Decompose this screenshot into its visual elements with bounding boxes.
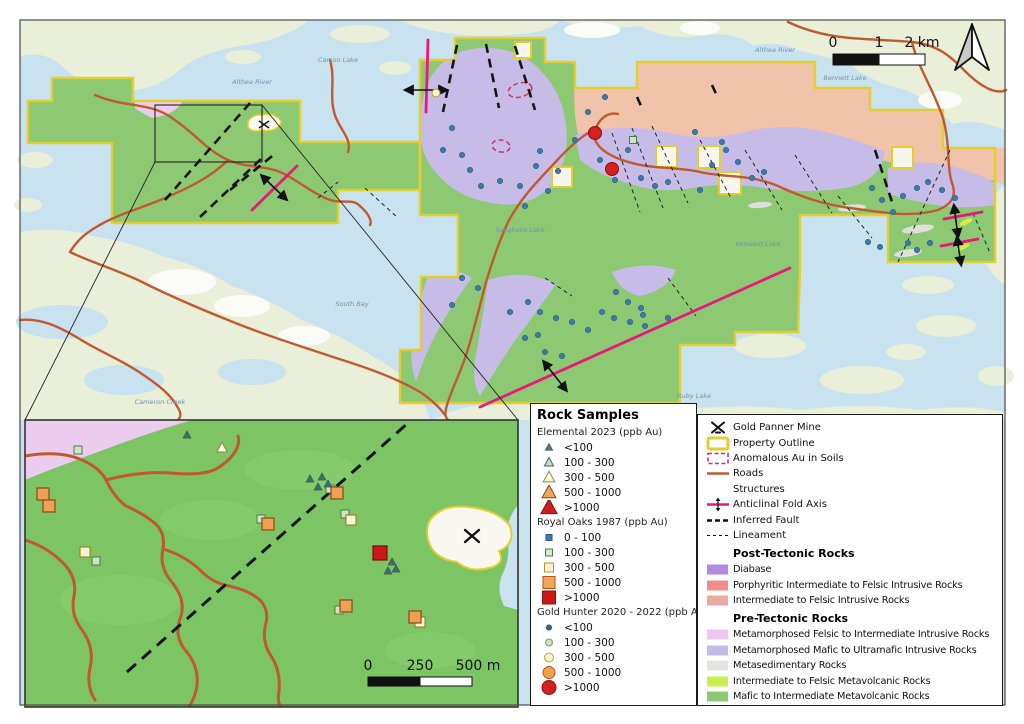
sample-dot (585, 327, 591, 333)
legend-item: 300 - 500 (537, 470, 690, 485)
sample-dot (497, 178, 503, 184)
legend-item-label: Metasedimentary Rocks (733, 660, 846, 671)
legend-header-post-tectonic: Post-Tectonic Rocks (706, 546, 994, 562)
sample-dot (517, 183, 523, 189)
legend-item-label: 300 - 500 (564, 472, 615, 484)
sample-dot (638, 305, 644, 311)
square-symbol (545, 563, 554, 572)
sample-dot (537, 309, 543, 315)
sample-dot (697, 187, 703, 193)
sample-dot (642, 323, 648, 329)
legend-item-label: 500 - 1000 (564, 667, 621, 679)
rock-unit-swatch (707, 565, 728, 575)
sample-dot (585, 109, 591, 115)
legend-item: Anticlinal Fold Axis (706, 497, 994, 512)
legend-item-label: <100 (564, 622, 593, 634)
legend-item: Intermediate to Felsic Metavolcanic Rock… (706, 673, 994, 688)
legend-item-label: Intermediate to Felsic Intrusive Rocks (733, 595, 909, 606)
sample-dot (735, 159, 741, 165)
circle-symbol (546, 639, 553, 646)
sample-dot (507, 309, 513, 315)
sample-dot (890, 209, 896, 215)
legend-item-label: 0 - 100 (564, 532, 601, 544)
sample-dot (478, 183, 484, 189)
legend-item-label: 300 - 500 (564, 652, 615, 664)
legend-item-label: Roads (733, 468, 763, 479)
legend-item-label: Structures (733, 484, 785, 495)
sample-dot (522, 203, 528, 209)
inset-scale-250: 250 (407, 658, 434, 674)
sample-dot (652, 183, 658, 189)
triangle-symbol (542, 485, 556, 498)
lake-label: South Bay (335, 300, 368, 308)
legend-symbol (706, 451, 730, 466)
legend-item: 500 - 1000 (537, 575, 690, 590)
scale-1: 1 (875, 35, 884, 51)
legend-item: Diabase (706, 562, 994, 577)
legend-symbol (537, 620, 561, 635)
sample-dot (467, 167, 473, 173)
sample-circle-high (606, 163, 619, 176)
legend-section-label: Elemental 2023 (ppb Au) (537, 425, 690, 440)
sample-dot (719, 139, 725, 145)
legend-item-label: Porphyritic Intermediate to Felsic Intru… (733, 580, 963, 591)
rock-unit-swatch (707, 692, 728, 702)
sample-dot (761, 169, 767, 175)
legend-item-label: >1000 (564, 592, 600, 604)
inset-scale-500m: 500 m (456, 658, 501, 674)
legend-symbol (706, 689, 730, 704)
legend-item: 500 - 1000 (537, 485, 690, 500)
legend-item: Metamorphosed Mafic to Ultramafic Intrus… (706, 643, 994, 658)
sample-dot (665, 315, 671, 321)
legend-section-label: Royal Oaks 1987 (ppb Au) (537, 515, 690, 530)
lake-label: Althea River (231, 78, 273, 86)
sample-dot (692, 129, 698, 135)
legend-item-label: Lineament (733, 530, 786, 541)
sample-dot (709, 162, 715, 168)
legend-item: Gold Panner Mine (706, 420, 994, 435)
anomalous-soils-icon (708, 453, 728, 463)
legend-item-label: 300 - 500 (564, 562, 615, 574)
sample-dot (449, 125, 455, 131)
sample-square (37, 488, 49, 500)
legend-item-label: 500 - 1000 (564, 577, 621, 589)
legend-symbol (537, 545, 561, 560)
rock-unit-swatch (707, 596, 728, 606)
sample-square (630, 137, 637, 144)
triangle-symbol (541, 500, 557, 514)
sample-dot (613, 289, 619, 295)
legend-item-label: Metamorphosed Mafic to Ultramafic Intrus… (733, 645, 977, 656)
legend-item: Property Outline (706, 435, 994, 450)
legend-item-label: Property Outline (733, 438, 815, 449)
legend-item-label: Inferred Fault (733, 515, 799, 526)
legend-item-label: Anticlinal Fold Axis (733, 499, 827, 510)
legend-item-label: <100 (564, 442, 593, 454)
sample-dot (553, 315, 559, 321)
legend-item: >1000 (537, 590, 690, 605)
legend-item-label: Metamorphosed Felsic to Intermediate Int… (733, 629, 989, 640)
sample-dot (597, 157, 603, 163)
square-symbol (546, 535, 552, 541)
legend-symbol (537, 560, 561, 575)
legend-item-label: Intermediate to Felsic Metavolcanic Rock… (733, 676, 930, 687)
sample-dot (545, 188, 551, 194)
legend-item: Metasedimentary Rocks (706, 658, 994, 673)
circle-symbol (542, 681, 556, 695)
sample-square-high (373, 546, 387, 560)
legend-symbol (537, 455, 561, 470)
legend-item-label: 500 - 1000 (564, 487, 621, 499)
sample-dot (572, 137, 578, 143)
legend-symbol (706, 658, 730, 673)
legend-item: Intermediate to Felsic Intrusive Rocks (706, 593, 994, 608)
legend-item: 0 - 100 (537, 530, 690, 545)
sample-dot (914, 247, 920, 253)
sample-dot (625, 299, 631, 305)
sample-dot (612, 177, 618, 183)
legend-symbol (537, 500, 561, 515)
legend-item-label: 100 - 300 (564, 457, 615, 469)
legend-item: Roads (706, 466, 994, 481)
sample-dot (877, 244, 883, 250)
legend-symbol (706, 497, 730, 512)
sample-dot (879, 197, 885, 203)
sample-square (340, 600, 352, 612)
legend-symbol (537, 635, 561, 650)
sample-dot (640, 312, 646, 318)
legend-rock-samples: Rock Samples Elemental 2023 (ppb Au)<100… (530, 403, 697, 706)
legend-symbol (706, 528, 730, 543)
legend-symbol (706, 466, 730, 481)
sample-dot (602, 94, 608, 100)
legend-item: 100 - 300 (537, 455, 690, 470)
sample-dot (611, 315, 617, 321)
sample-dot (459, 152, 465, 158)
sample-square (43, 500, 55, 512)
legend-item-label: 100 - 300 (564, 637, 615, 649)
sample-dot (542, 349, 548, 355)
sample-dot (475, 285, 481, 291)
legend-symbol (706, 643, 730, 658)
legend-item: Metamorphosed Felsic to Intermediate Int… (706, 627, 994, 642)
legend-item: Porphyritic Intermediate to Felsic Intru… (706, 578, 994, 593)
square-symbol (546, 549, 553, 556)
sample-dot (625, 147, 631, 153)
lake-label: Bennett Lake (823, 74, 866, 82)
salmon-outside (995, 148, 1005, 185)
sample-dot (900, 193, 906, 199)
triangle-symbol (546, 444, 553, 450)
triangle-symbol (544, 458, 553, 466)
legend-item: Mafic to Intermediate Metavolcanic Rocks (706, 689, 994, 704)
sample-dot (925, 179, 931, 185)
legend-item-label: >1000 (564, 682, 600, 694)
legend-item: 100 - 300 (537, 635, 690, 650)
legend-symbol (706, 562, 730, 577)
sample-dot (665, 179, 671, 185)
legend-symbol (537, 530, 561, 545)
legend-item: 500 - 1000 (537, 665, 690, 680)
legend-title: Rock Samples (537, 408, 690, 423)
legend-symbol (537, 590, 561, 605)
square-symbol (543, 591, 556, 604)
rock-unit-swatch (707, 661, 728, 671)
legend-symbol (537, 680, 561, 695)
lake-label: Carson Lake (318, 56, 358, 64)
sample-dot (569, 319, 575, 325)
sample-dot (533, 163, 539, 169)
sample-dot (535, 332, 541, 338)
legend-symbol (706, 513, 730, 528)
lake-label: Songhans Lake (495, 226, 544, 234)
sample-dot (555, 168, 561, 174)
sample-dot (914, 185, 920, 191)
legend-header-pre-tectonic: Pre-Tectonic Rocks (706, 611, 994, 627)
lake-label: Ruby Lake (677, 392, 711, 400)
lake-label: Althea River (754, 46, 796, 54)
legend-map-symbols: Gold Panner MineProperty OutlineAnomalou… (697, 414, 1003, 706)
legend-symbol (537, 575, 561, 590)
legend-item: 100 - 300 (537, 545, 690, 560)
legend-item: Inferred Fault (706, 512, 994, 527)
legend-section-label: Gold Hunter 2020 - 2022 (ppb Au) (537, 605, 690, 620)
legend-symbol (706, 420, 730, 435)
sample-dot (638, 175, 644, 181)
legend-item: Lineament (706, 528, 994, 543)
sample-dot (522, 335, 528, 341)
rock-unit-swatch (707, 645, 728, 655)
lake-label: Kenwest Lake (736, 240, 781, 248)
rock-unit-swatch (707, 630, 728, 640)
legend-item: >1000 (537, 680, 690, 695)
sample-square (74, 446, 82, 454)
legend-item: Structures (706, 482, 994, 497)
legend-item-label: Mafic to Intermediate Metavolcanic Rocks (733, 691, 930, 702)
rock-unit-swatch (707, 580, 728, 590)
sample-dot (952, 195, 958, 201)
sample-dot (939, 187, 945, 193)
sample-square (80, 547, 90, 557)
sample-dot (905, 240, 911, 246)
sample-dot (869, 185, 875, 191)
sample-dot (927, 240, 933, 246)
legend-symbol (706, 578, 730, 593)
circle-symbol (547, 625, 552, 630)
geology-map-figure: Carson LakeAlthea RiverAlthea RiverBenne… (0, 0, 1024, 724)
sample-dot (599, 309, 605, 315)
sample-dot (459, 275, 465, 281)
square-symbol (543, 577, 555, 589)
inset-scale-0: 0 (364, 658, 373, 674)
legend-item: <100 (537, 440, 690, 455)
sample-dot (723, 147, 729, 153)
sample-dot (749, 175, 755, 181)
sample-dot (440, 147, 446, 153)
legend-item: 300 - 500 (537, 650, 690, 665)
legend-symbol (706, 627, 730, 642)
property-exclusion (892, 147, 913, 168)
sample-dot (537, 148, 543, 154)
circle-symbol (545, 653, 554, 662)
scale-0: 0 (829, 35, 838, 51)
inset-map: 0 250 500 m (25, 420, 518, 707)
legend-symbol (706, 593, 730, 608)
legend-item: Anomalous Au in Soils (706, 451, 994, 466)
sample-square (92, 557, 100, 565)
sample-square (346, 515, 356, 525)
sample-dot (865, 239, 871, 245)
sample-square (331, 487, 343, 499)
circle-symbol (543, 667, 555, 679)
legend-item-label: >1000 (564, 502, 600, 514)
legend-item-label: 100 - 300 (564, 547, 615, 559)
legend-symbol (706, 674, 730, 689)
legend-item-label: Anomalous Au in Soils (733, 453, 844, 464)
scale-2km: 2 km (904, 35, 939, 51)
sample-dot (559, 353, 565, 359)
sample-circle-high (589, 127, 602, 140)
legend-item: <100 (537, 620, 690, 635)
legend-item-label: Diabase (733, 564, 771, 575)
legend-symbol (537, 470, 561, 485)
legend-item: 300 - 500 (537, 560, 690, 575)
legend-symbol (537, 650, 561, 665)
mine-icon (712, 423, 724, 433)
legend-item-label: Gold Panner Mine (733, 422, 821, 433)
property-outline-icon (708, 438, 728, 449)
sample-circle (432, 89, 440, 97)
legend-symbol (537, 440, 561, 455)
legend-item: >1000 (537, 500, 690, 515)
sample-square (262, 518, 274, 530)
rock-unit-swatch (707, 676, 728, 686)
legend-symbol (706, 436, 730, 451)
sample-dot (627, 319, 633, 325)
sample-dot (449, 302, 455, 308)
sample-square (409, 611, 421, 623)
lake-label: Cameron Creek (135, 398, 186, 406)
property-exclusion (552, 167, 572, 187)
legend-symbol (537, 665, 561, 680)
triangle-symbol (543, 471, 555, 482)
sample-dot (525, 299, 531, 305)
legend-symbol (537, 485, 561, 500)
